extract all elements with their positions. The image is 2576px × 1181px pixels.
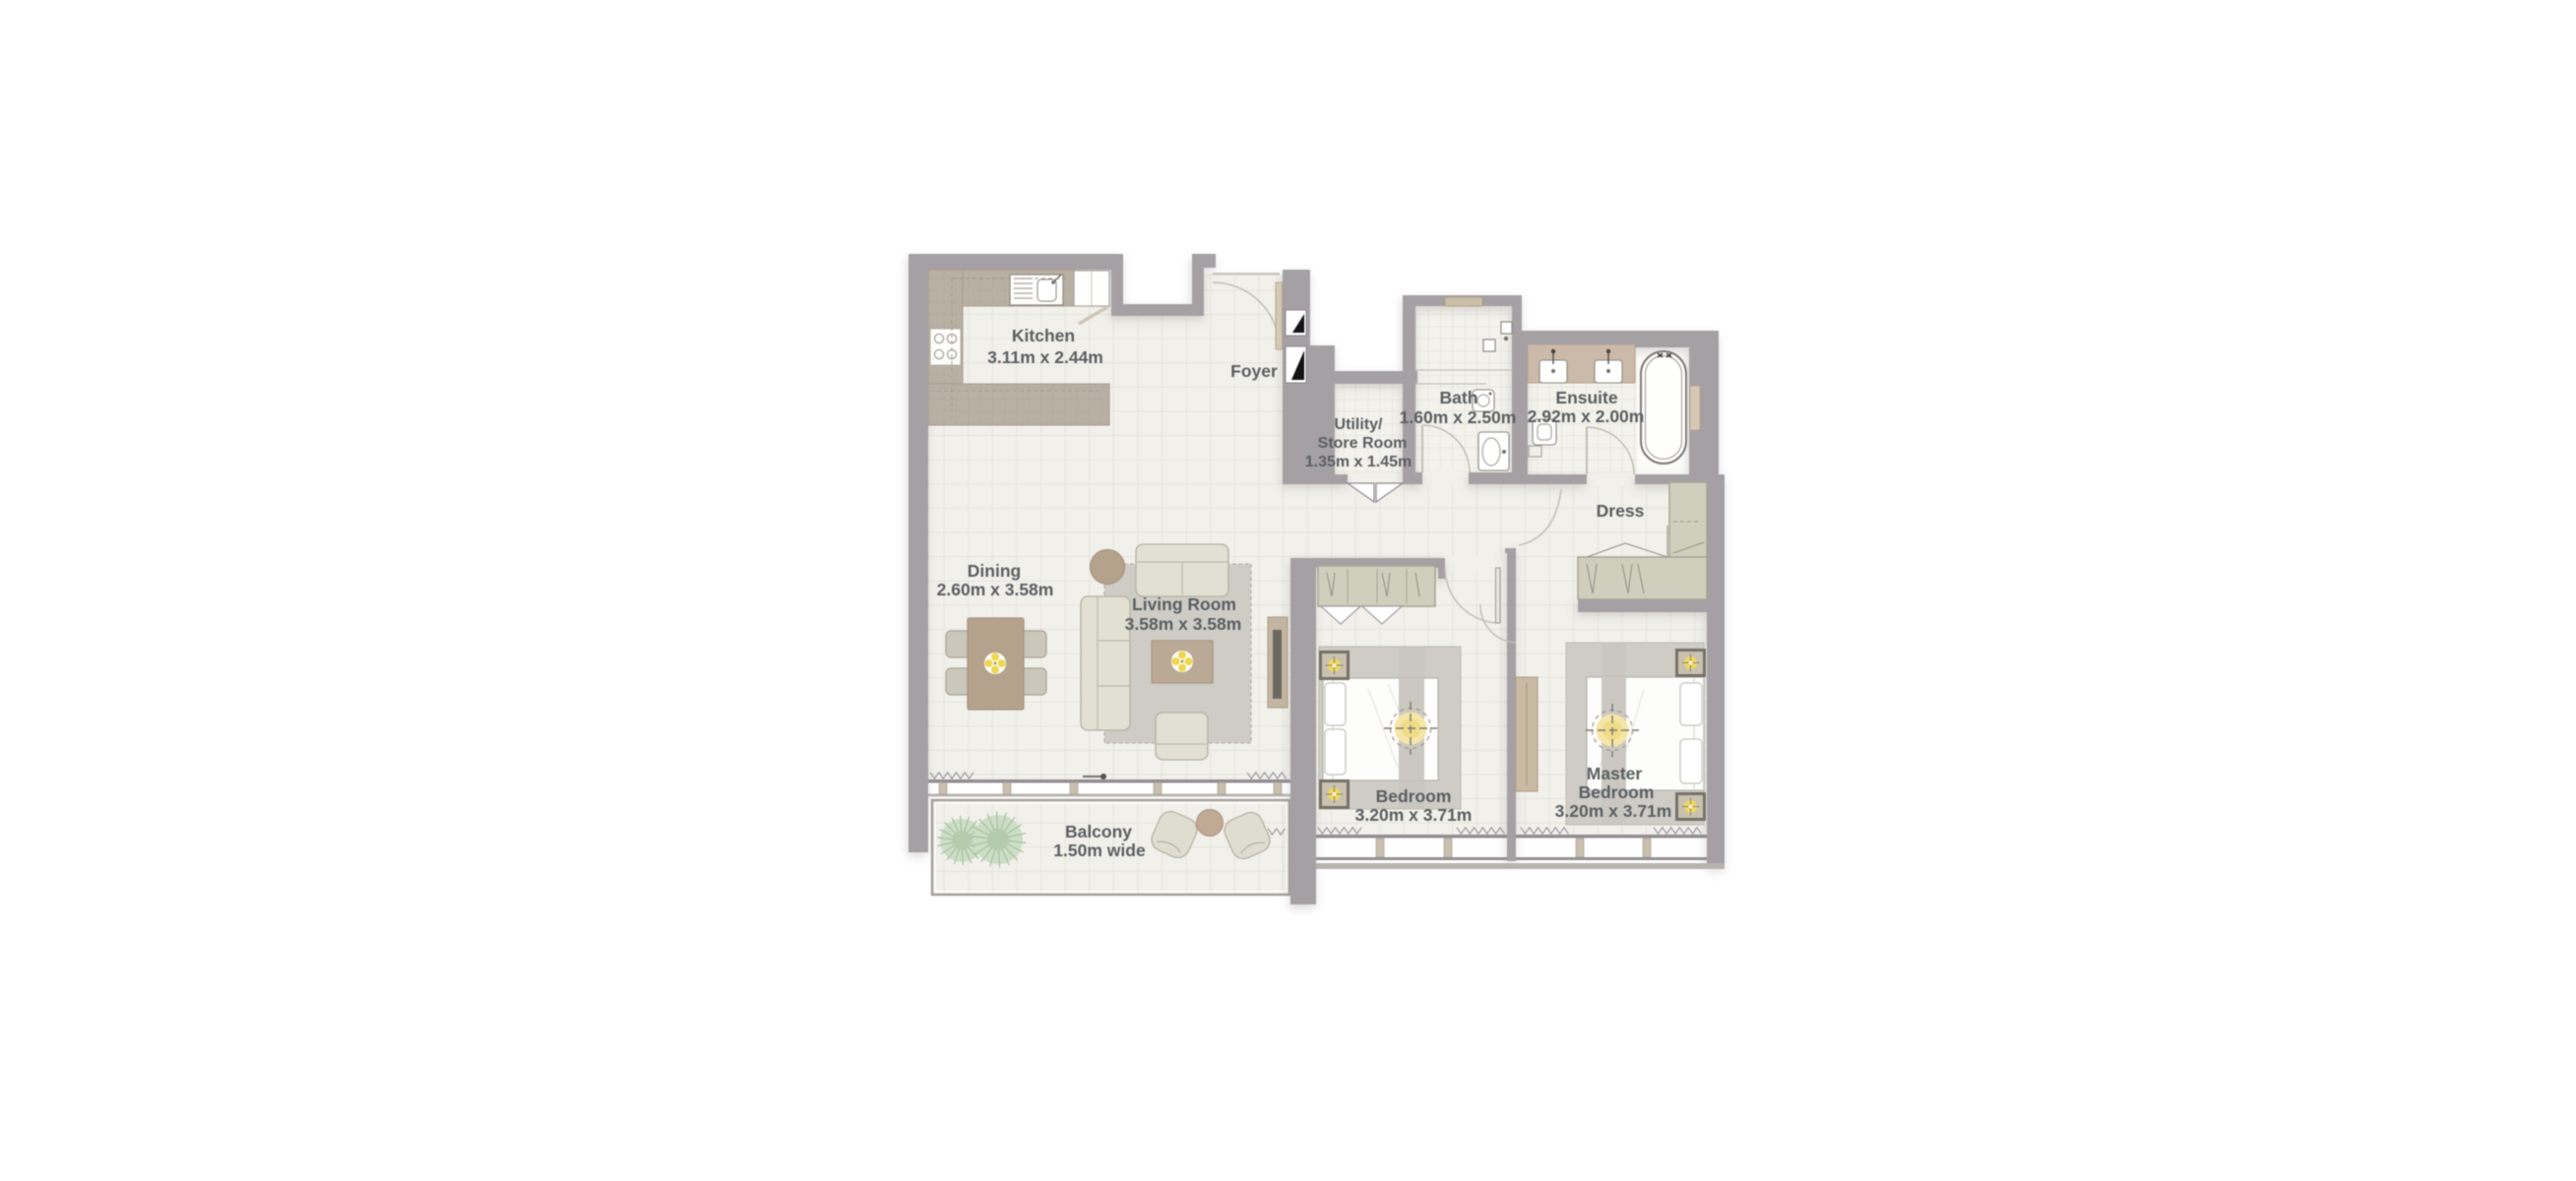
svg-text:1.35m x 1.45m: 1.35m x 1.45m bbox=[1305, 454, 1413, 470]
svg-text:Dining: Dining bbox=[968, 561, 1021, 581]
svg-text:3.58m x 3.58m: 3.58m x 3.58m bbox=[1125, 614, 1242, 634]
svg-text:1.50m wide: 1.50m wide bbox=[1053, 840, 1146, 860]
svg-text:Bedroom: Bedroom bbox=[1376, 786, 1452, 806]
svg-text:Living Room: Living Room bbox=[1132, 594, 1236, 614]
svg-text:Balcony: Balcony bbox=[1065, 822, 1132, 841]
svg-text:Bath: Bath bbox=[1440, 388, 1478, 407]
svg-text:Foyer: Foyer bbox=[1230, 361, 1278, 381]
svg-text:Store Room: Store Room bbox=[1318, 435, 1408, 452]
svg-text:Utility/: Utility/ bbox=[1335, 416, 1383, 433]
svg-text:Master: Master bbox=[1587, 764, 1643, 783]
svg-text:Kitchen: Kitchen bbox=[1012, 326, 1075, 345]
svg-text:3.20m x 3.71m: 3.20m x 3.71m bbox=[1355, 805, 1473, 825]
svg-text:Ensuite: Ensuite bbox=[1555, 388, 1617, 407]
svg-text:1.60m x 2.50m: 1.60m x 2.50m bbox=[1400, 407, 1517, 427]
svg-text:Bedroom: Bedroom bbox=[1579, 782, 1655, 802]
svg-text:3.11m x 2.44m: 3.11m x 2.44m bbox=[987, 347, 1103, 367]
svg-text:3.20m x 3.71m: 3.20m x 3.71m bbox=[1555, 801, 1672, 821]
svg-text:2.92m x 2.00m: 2.92m x 2.00m bbox=[1528, 406, 1645, 426]
svg-text:2.60m x 3.58m: 2.60m x 3.58m bbox=[937, 580, 1054, 599]
svg-text:Dress: Dress bbox=[1597, 501, 1645, 521]
